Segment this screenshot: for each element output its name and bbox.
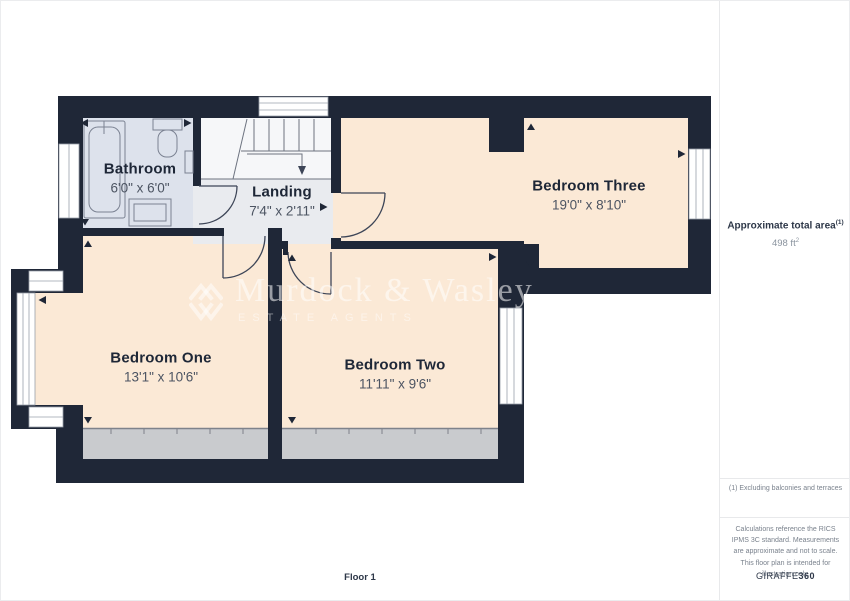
mid-wall-stub [282,241,288,249]
room-label-bathroom: Bathroom 6'0" x 6'0" [104,161,176,196]
bay-window-bottom [29,407,63,427]
total-area-block: Approximate total area(1) 498 ft2 [720,219,850,249]
floor-label: Floor 1 [1,572,719,583]
chimney-breast [489,118,524,152]
room-name: Landing [249,184,315,201]
room-dimensions: 13'1" x 10'6" [110,370,211,385]
giraffe360-brand: GIRAFFE360 [720,571,850,581]
bedroom-two-floor [282,241,498,428]
bedroom-one-floor [76,228,268,428]
reduced-headroom-strips [76,428,498,459]
total-area-title: Approximate total area(1) [720,219,850,231]
total-area-label: Approximate total area [727,220,835,231]
bedroom-one-top-wall [58,228,224,236]
bay-window-side [17,293,35,405]
room-dimensions: 7'4" x 2'11" [249,204,315,219]
room-dimensions: 11'11" x 9'6" [344,377,445,392]
area-footnote: (1) Excluding balconies and terraces [720,485,850,492]
floorplan-drawing: Murdock & Wasley ESTATE AGENTS Bathroom … [1,1,719,601]
room-dimensions: 19'0" x 8'10" [532,198,645,213]
sidebar-divider [720,478,850,479]
room-label-landing: Landing 7'4" x 2'11" [249,184,315,219]
room-label-bedroom-one: Bedroom One 13'1" x 10'6" [110,350,211,385]
bedroom-two-window [500,308,522,404]
bedroom-divider-wall [268,228,282,459]
bay-outer-wall [11,293,17,405]
floorplan-svg [1,1,719,601]
room-name: Bathroom [104,161,176,178]
bottom-wall [56,459,524,483]
bedroom-three-bottom-wall [524,268,711,294]
top-wall [58,96,711,118]
room-label-bedroom-two: Bedroom Two 11'11" x 9'6" [344,357,445,392]
bathroom-landing-wall [193,118,201,186]
bedroom-one-bay-floor [35,293,80,405]
bedroom-three-left-wall-upper [331,118,341,193]
bedroom-three-window [689,149,710,219]
floorplan-page: Murdock & Wasley ESTATE AGENTS Bathroom … [0,0,850,601]
room-name: Bedroom Three [532,178,645,195]
room-name: Bedroom Two [344,357,445,374]
brand-name: GIRAFFE [756,571,799,581]
room-name: Bedroom One [110,350,211,367]
info-sidebar: Approximate total area(1) 498 ft2 (1) Ex… [719,1,850,601]
area-unit-sup: 2 [796,238,799,244]
stair-window [259,97,328,116]
bathroom-window [59,144,79,218]
left-wall-lower [56,429,83,461]
bay-window-top [29,271,63,291]
footnote-marker: (1) [836,219,844,226]
room-dimensions: 6'0" x 6'0" [104,181,176,196]
total-area-value: 498 ft2 [720,238,850,249]
stairwell-floor [201,118,331,179]
area-number: 498 ft [772,238,796,249]
mid-wall [331,241,498,249]
sidebar-divider [720,517,850,518]
brand-suffix: 360 [798,571,815,581]
room-label-bedroom-three: Bedroom Three 19'0" x 8'10" [532,178,645,213]
